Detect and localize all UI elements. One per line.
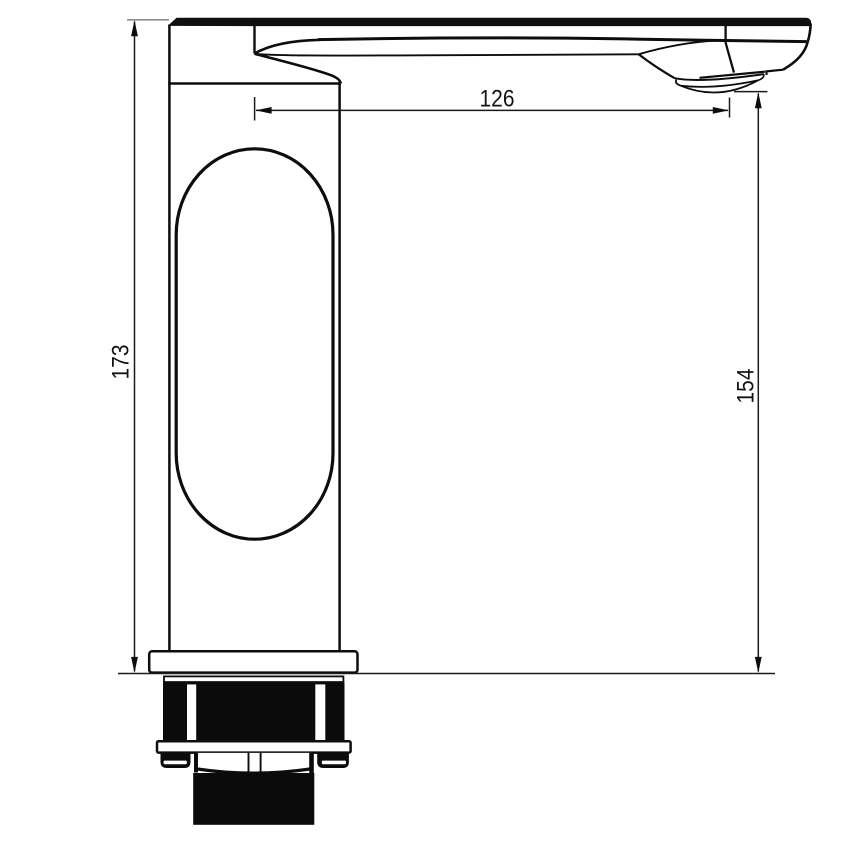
svg-text:173: 173 <box>108 345 135 380</box>
svg-text:154: 154 <box>733 369 760 404</box>
svg-text:126: 126 <box>480 85 515 112</box>
